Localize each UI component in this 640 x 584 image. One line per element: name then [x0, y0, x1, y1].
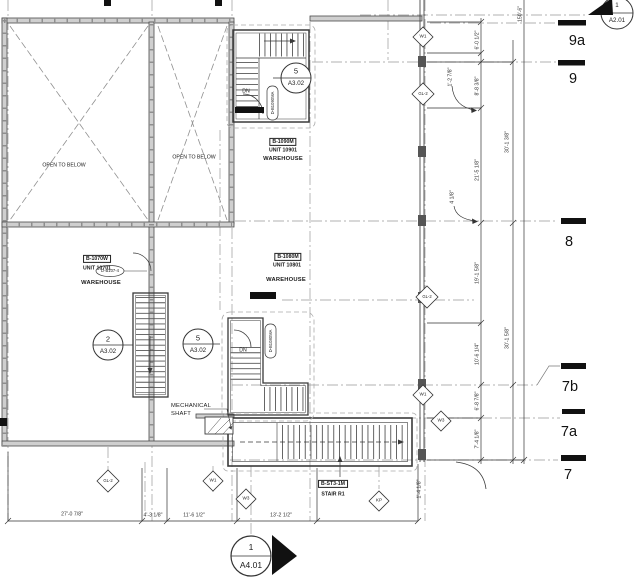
mechanical-label-line1: MECHANICAL — [171, 404, 211, 410]
grid-label-7: 7 — [564, 468, 572, 483]
door-tag-d107: D-B107-4 — [101, 269, 119, 273]
grid-label-7b: 7b — [562, 380, 578, 395]
dim-right-1: 6'-0 1/2" — [475, 31, 480, 50]
keynote-w3-bottom: W3 — [243, 497, 250, 502]
room-name-10701: WAREHOUSE — [81, 281, 121, 287]
room-tag-b1070w: B-1070W — [83, 255, 111, 263]
room-name-10801: WAREHOUSE — [266, 278, 306, 284]
callout-5a-number: 5 — [196, 334, 200, 342]
floor-plan-linework — [0, 0, 640, 584]
dim-right-3: 21'-5 1/8" — [475, 159, 480, 181]
stair-r1-tag: B-ST3-1M — [318, 480, 348, 488]
walls — [2, 16, 422, 446]
door-tag-pills — [265, 86, 278, 358]
open-to-below-left: OPEN TO BELOW — [42, 163, 85, 168]
dim-right-6: 6'-8 7/8" — [475, 392, 480, 411]
grid-label-8: 8 — [565, 235, 573, 250]
section-bottom-sheet: A4.01 — [240, 561, 262, 570]
egress-dashes — [222, 25, 417, 471]
keynote-gl2-bottom: GL-2 — [103, 479, 112, 483]
dim-leader-2: 4 1/8" — [450, 190, 455, 203]
grid-label-9: 9 — [569, 72, 577, 87]
section-marker-top — [588, 0, 633, 29]
dim-leader-1: 1'-2 7/8" — [448, 68, 453, 87]
dim-right-7: 7'-4 1/8" — [475, 430, 480, 449]
mid-wall-poche — [250, 292, 276, 299]
keynote-w1-mid: W1 — [420, 393, 427, 398]
upper-stair-wall-poche — [235, 107, 264, 113]
section-bottom-number: 1 — [249, 543, 254, 552]
stair-r1-name: STAIR R1 — [321, 492, 344, 497]
grid-label-9a: 9a — [569, 34, 585, 49]
section-top-number: 1 — [615, 3, 618, 9]
room-unit-10801: UNIT 10801 — [273, 263, 301, 268]
keynote-w1-bottom: W1 — [210, 479, 217, 484]
room-name-10901: WAREHOUSE — [263, 157, 303, 163]
room-tag-b1090m: B-1090M — [269, 138, 296, 146]
open-to-below-right: OPEN TO BELOW — [172, 155, 215, 160]
wall-stud-bands — [4, 20, 232, 446]
dim-outer-total: 150'-6" — [518, 6, 523, 22]
floor-plan: 9a 9 8 7b 7a 7 1 A2.01 1 A4.01 2 A3.02 5… — [0, 0, 640, 584]
callout-2-sheet: A3.02 — [100, 349, 116, 355]
keynote-gl2-mid: GL-2 — [422, 295, 431, 299]
edge-wall-cut-marks — [0, 0, 222, 426]
callout-2-number: 2 — [106, 335, 110, 343]
dim-right-4: 19'-1 5/8" — [475, 262, 480, 284]
dim-bottom-1: 27'-0 7/8" — [61, 512, 83, 517]
bottom-right-door-swing — [456, 462, 486, 489]
dim-right-5: 10'-6 1/4" — [475, 343, 480, 365]
keynote-w3-right: W3 — [438, 419, 445, 424]
section-marker-bottom — [231, 535, 297, 576]
callout-5a-sheet: A3.02 — [190, 348, 206, 354]
door-tag-d1090: D-B1090MA — [270, 92, 274, 115]
keynote-w1-top: W1 — [420, 35, 427, 40]
keynote-gl2-top: GL-2 — [418, 92, 427, 96]
dim-right-2: 8'-8 3/8" — [475, 77, 480, 96]
mechanical-label-line2: SHAFT — [171, 412, 191, 418]
grid-jog-7b — [537, 366, 560, 385]
x-bracing — [10, 26, 227, 220]
dim-outer-1: 30'-1 3/8" — [505, 131, 510, 153]
callout-5b-number: 5 — [294, 67, 298, 75]
room-unit-10901: UNIT 10901 — [269, 148, 297, 153]
room-tag-b1080m: B-1080M — [274, 253, 301, 261]
keynote-kp: KP — [376, 499, 382, 504]
dim-leader-3: 1'-4 1/8" — [417, 480, 422, 499]
dim-outer-2: 30'-1 5/8" — [505, 327, 510, 349]
section-top-sheet: A2.01 — [609, 18, 625, 24]
dim-bottom-4: 13'-2 1/2" — [270, 513, 292, 518]
stair-r1 — [228, 418, 412, 477]
grid-label-7a: 7a — [561, 425, 577, 440]
door-tag-d1080: D-B1080MA — [268, 330, 272, 353]
callout-5b-sheet: A3.02 — [288, 81, 304, 87]
dim-bottom-3: 11'-6 1/2" — [183, 513, 204, 518]
dn-label-center: DN — [239, 348, 247, 353]
dn-label-upper: DN — [242, 89, 250, 94]
dim-bottom-2: 4'-3 1/8" — [144, 513, 163, 518]
